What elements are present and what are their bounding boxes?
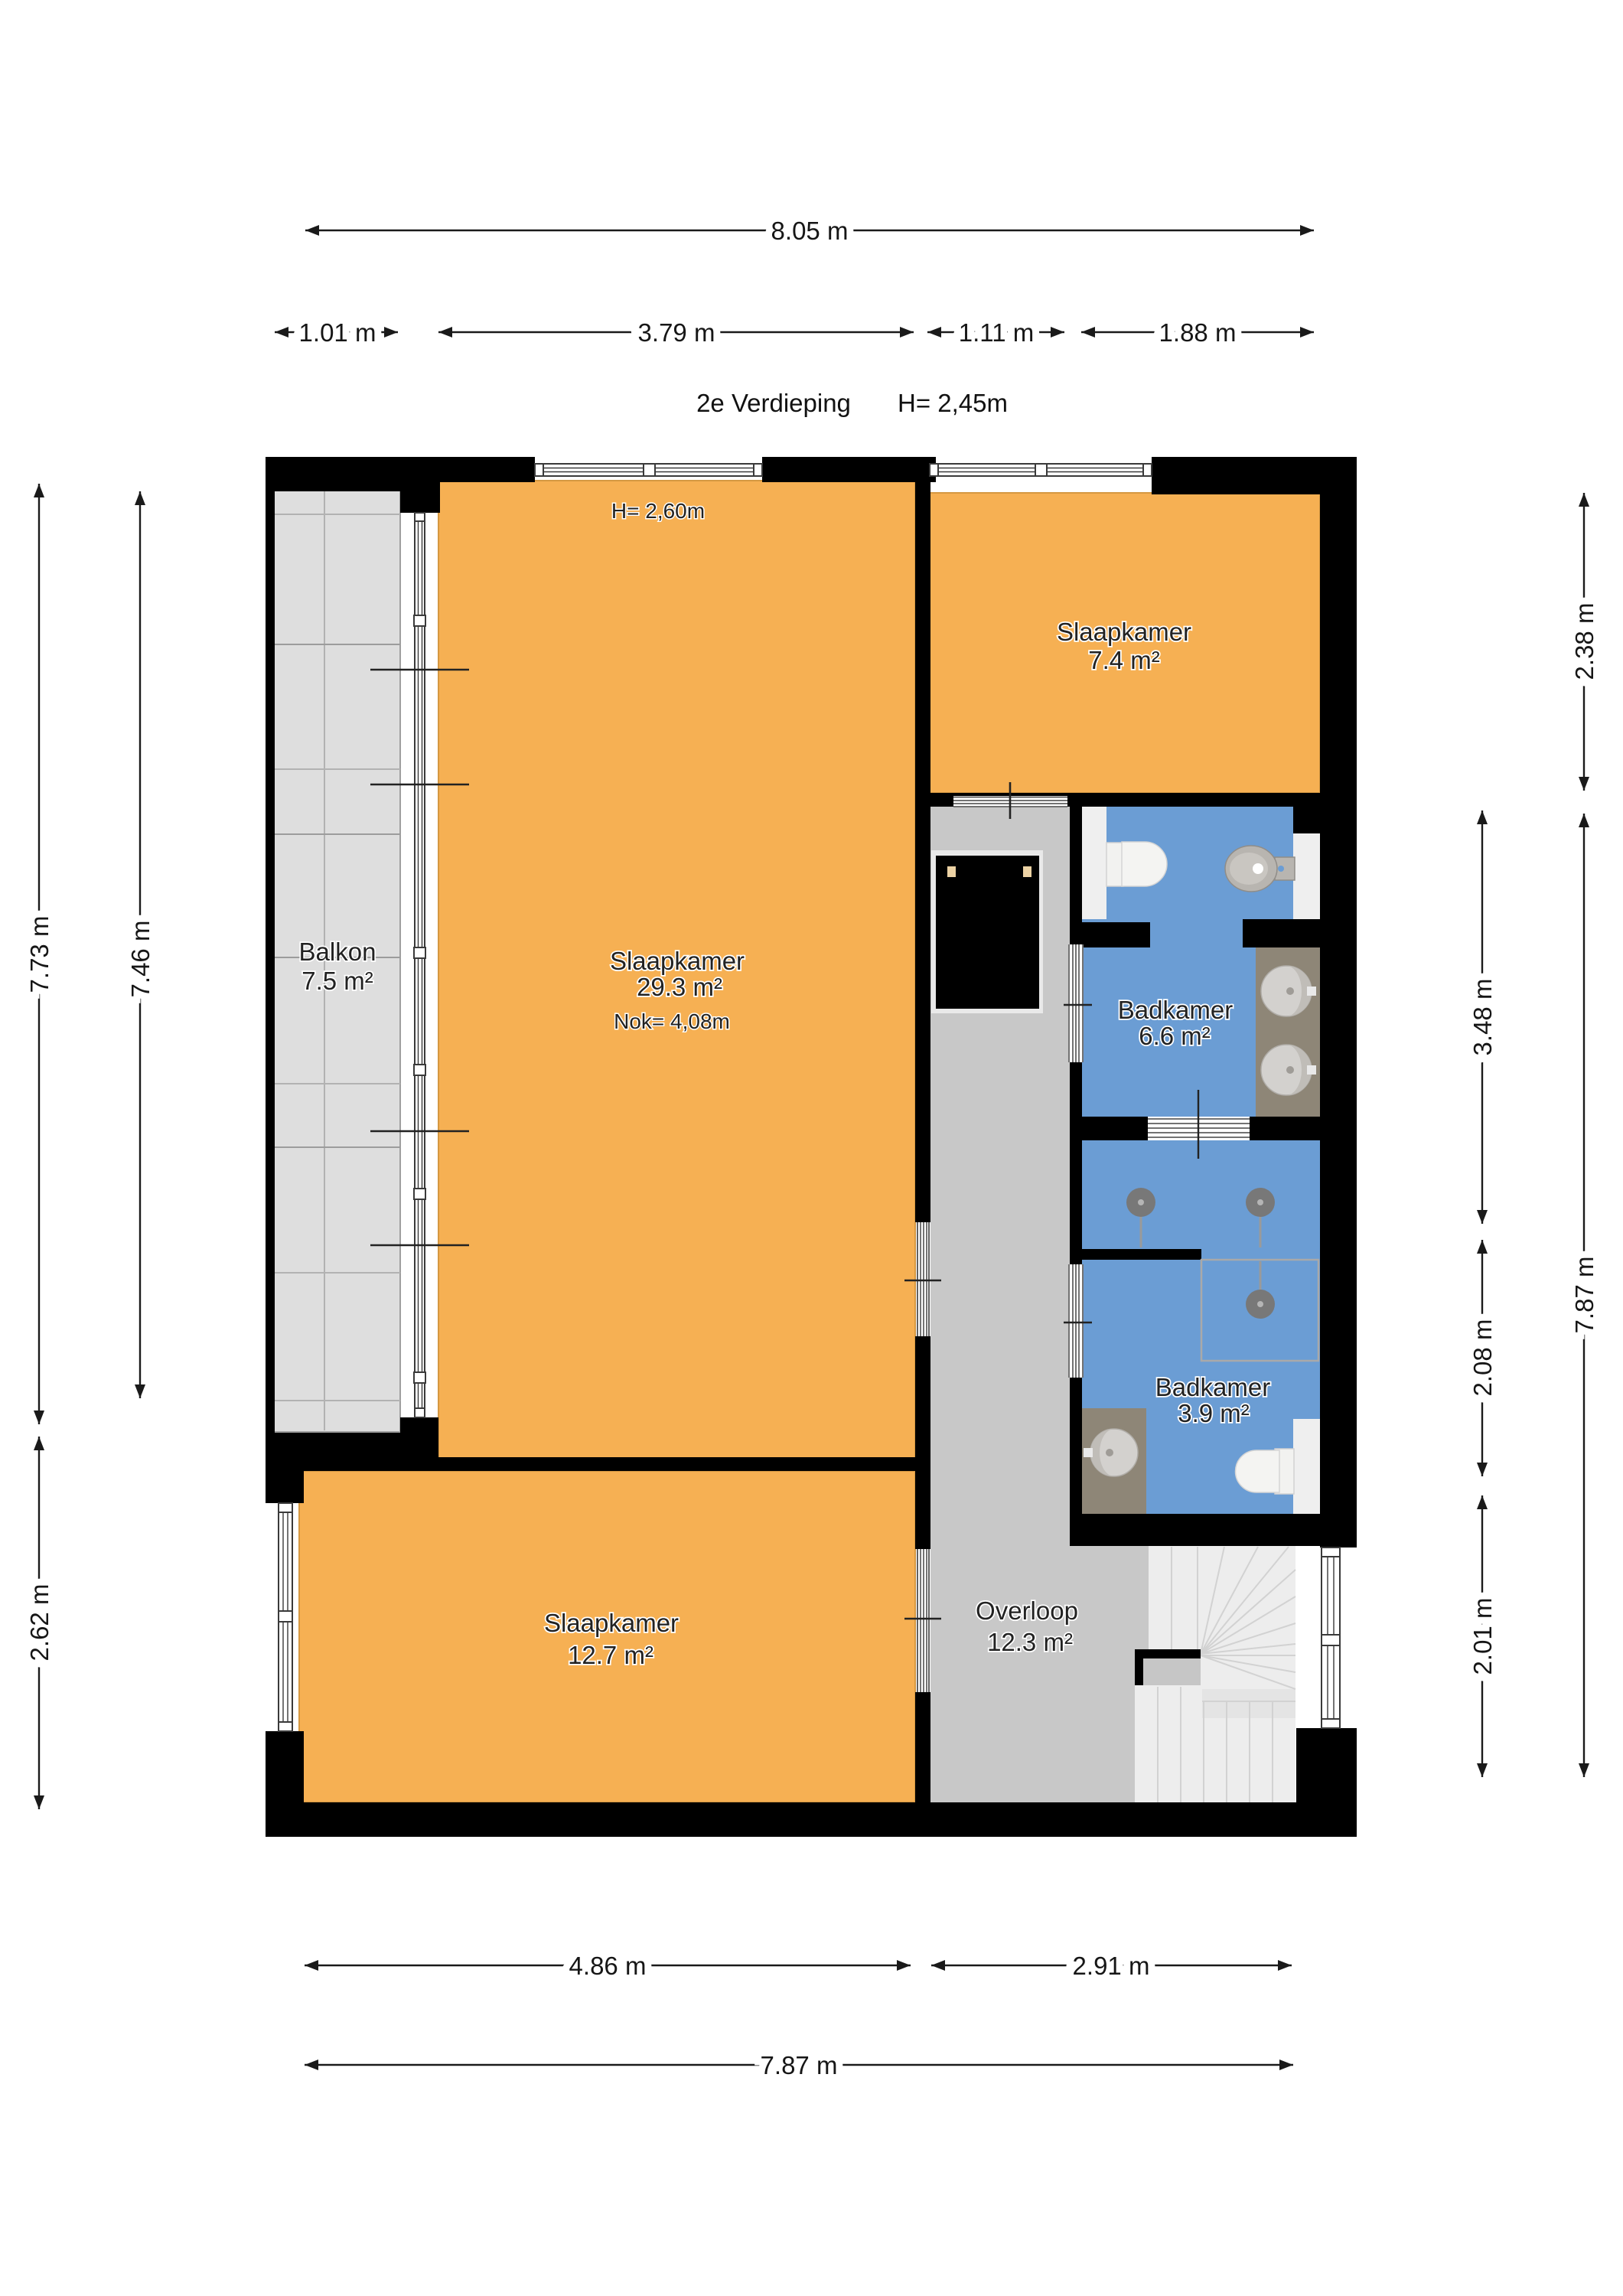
svg-text:7.4 m²: 7.4 m² — [1088, 646, 1160, 674]
svg-text:2.08 m: 2.08 m — [1468, 1319, 1497, 1397]
svg-text:Slaapkamer: Slaapkamer — [610, 947, 745, 975]
svg-text:Balkon: Balkon — [299, 938, 376, 966]
svg-text:2.91 m: 2.91 m — [1073, 1952, 1150, 1980]
svg-text:7.87 m: 7.87 m — [761, 2051, 838, 2079]
svg-text:12.7 m²: 12.7 m² — [568, 1641, 653, 1669]
svg-text:1.11 m: 1.11 m — [959, 318, 1034, 347]
svg-text:Overloop: Overloop — [976, 1596, 1078, 1625]
svg-text:2.01 m: 2.01 m — [1468, 1598, 1497, 1675]
svg-text:3.48 m: 3.48 m — [1468, 979, 1497, 1056]
svg-text:7.5 m²: 7.5 m² — [301, 967, 373, 995]
svg-text:29.3 m²: 29.3 m² — [637, 973, 722, 1001]
svg-text:6.6 m²: 6.6 m² — [1139, 1022, 1211, 1050]
svg-text:4.86 m: 4.86 m — [569, 1952, 647, 1980]
svg-text:7.73 m: 7.73 m — [25, 916, 54, 993]
svg-text:Badkamer: Badkamer — [1155, 1373, 1270, 1401]
svg-text:2.62 m: 2.62 m — [25, 1584, 54, 1662]
svg-text:H= 2,60m: H= 2,60m — [611, 499, 705, 523]
svg-text:1.88 m: 1.88 m — [1159, 318, 1237, 347]
svg-text:Badkamer: Badkamer — [1118, 996, 1233, 1024]
svg-text:Nok= 4,08m: Nok= 4,08m — [614, 1009, 730, 1033]
svg-text:12.3 m²: 12.3 m² — [987, 1628, 1073, 1656]
svg-text:8.05 m: 8.05 m — [771, 217, 849, 245]
svg-text:1.01 m: 1.01 m — [299, 318, 376, 347]
svg-text:H= 2,45m: H= 2,45m — [898, 389, 1008, 417]
svg-text:2e Verdieping: 2e Verdieping — [696, 389, 851, 417]
svg-text:7.46 m: 7.46 m — [126, 921, 155, 998]
svg-text:Slaapkamer: Slaapkamer — [544, 1609, 679, 1637]
svg-text:3.9 m²: 3.9 m² — [1178, 1399, 1250, 1427]
svg-text:3.79 m: 3.79 m — [638, 318, 715, 347]
svg-text:2.38 m: 2.38 m — [1570, 603, 1599, 680]
svg-text:Slaapkamer: Slaapkamer — [1057, 618, 1191, 646]
svg-text:7.87 m: 7.87 m — [1570, 1257, 1599, 1334]
